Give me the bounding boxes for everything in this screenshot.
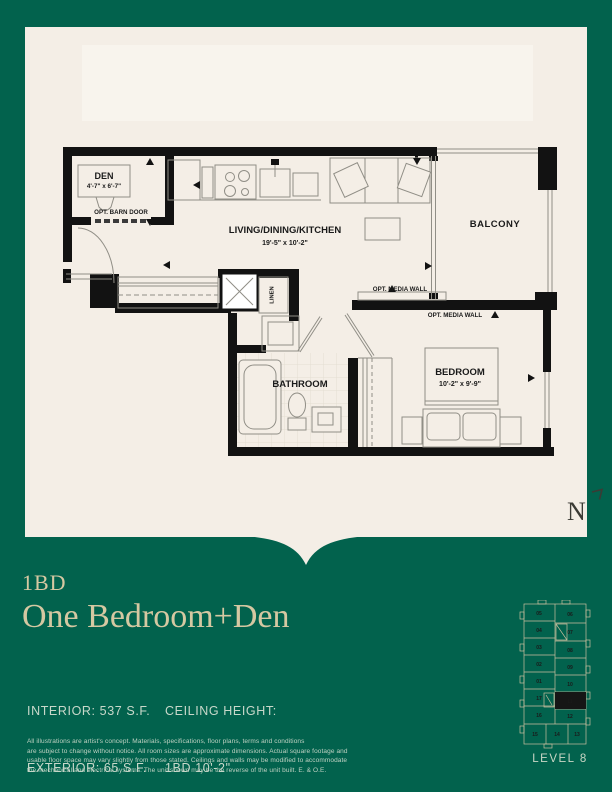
- keyplan-unit: 01: [536, 679, 542, 685]
- keyplan-unit: 16: [536, 713, 542, 719]
- disclaimer-line: the mechanical and electrical systems. T…: [27, 766, 367, 776]
- living-dims: 19'-5" x 10'-2": [262, 240, 308, 247]
- keyplan: 05 06 04 07 03 08 02 09 01 10 17 11 16 1…: [514, 600, 598, 750]
- brochure-page: DEN 4'-7" x 6'-7" OPT. BARN DOOR LIVING/…: [0, 0, 612, 792]
- keyplan-unit: 03: [536, 645, 542, 651]
- keyplan-unit: 04: [536, 628, 542, 634]
- unit-code: 1BD: [22, 570, 67, 596]
- living-label: LIVING/DINING/KITCHEN: [229, 225, 342, 236]
- logo-area: [82, 45, 533, 121]
- keyplan-unit: 10: [567, 682, 573, 688]
- keyplan-unit: 08: [567, 648, 573, 654]
- disclaimer-line: are subject to change without notice. Al…: [27, 747, 367, 757]
- keyplan-unit: 12: [567, 714, 573, 720]
- keyplan-unit: 05: [536, 611, 542, 617]
- den-label: DEN: [94, 171, 113, 181]
- north-letter: N: [567, 497, 586, 527]
- keyplan-unit-highlighted: 11: [567, 699, 573, 705]
- stat-ceiling-height-label: CEILING HEIGHT:: [165, 702, 277, 721]
- disclaimer-line: usable floor space may vary slightly fro…: [27, 756, 367, 766]
- keyplan-outline: [520, 600, 590, 748]
- keyplan-unit: 09: [567, 665, 573, 671]
- keyplan-unit: 14: [554, 732, 560, 738]
- keyplan-unit: 13: [574, 732, 580, 738]
- bedroom-dims: 10'-2" x 9'-9": [439, 381, 481, 388]
- keyplan-unit: 06: [567, 612, 573, 618]
- media-wall-living-note: OPT. MEDIA WALL: [373, 286, 428, 293]
- den-dims: 4'-7" x 6'-7": [87, 183, 121, 190]
- keyplan-unit: 07: [567, 630, 573, 636]
- north-arrow-icon: [590, 487, 605, 502]
- floorplan-card: DEN 4'-7" x 6'-7" OPT. BARN DOOR LIVING/…: [25, 27, 587, 537]
- barn-door-note: OPT. BARN DOOR: [94, 209, 148, 216]
- bathroom-label: BATHROOM: [272, 379, 327, 390]
- card-notch: [246, 536, 366, 565]
- floor-plan: DEN 4'-7" x 6'-7" OPT. BARN DOOR LIVING/…: [63, 143, 559, 459]
- unit-name: One Bedroom+Den: [22, 598, 290, 636]
- keyplan-unit: 02: [536, 662, 542, 668]
- disclaimer: All illustrations are artist's concept. …: [27, 737, 367, 776]
- keyplan-unit: 17: [536, 696, 542, 702]
- balcony-label: BALCONY: [470, 219, 521, 230]
- keyplan-level-label: LEVEL 8: [512, 753, 608, 765]
- media-wall-bedroom-note: OPT. MEDIA WALL: [428, 312, 483, 319]
- keyplan-unit: 15: [532, 732, 538, 738]
- bedroom-label: BEDROOM: [435, 367, 485, 378]
- north-arrow: N: [565, 487, 605, 529]
- disclaimer-line: All illustrations are artist's concept. …: [27, 737, 367, 747]
- stat-interior: INTERIOR: 537 S.F.: [27, 702, 150, 721]
- linen-label: LINEN: [270, 286, 276, 303]
